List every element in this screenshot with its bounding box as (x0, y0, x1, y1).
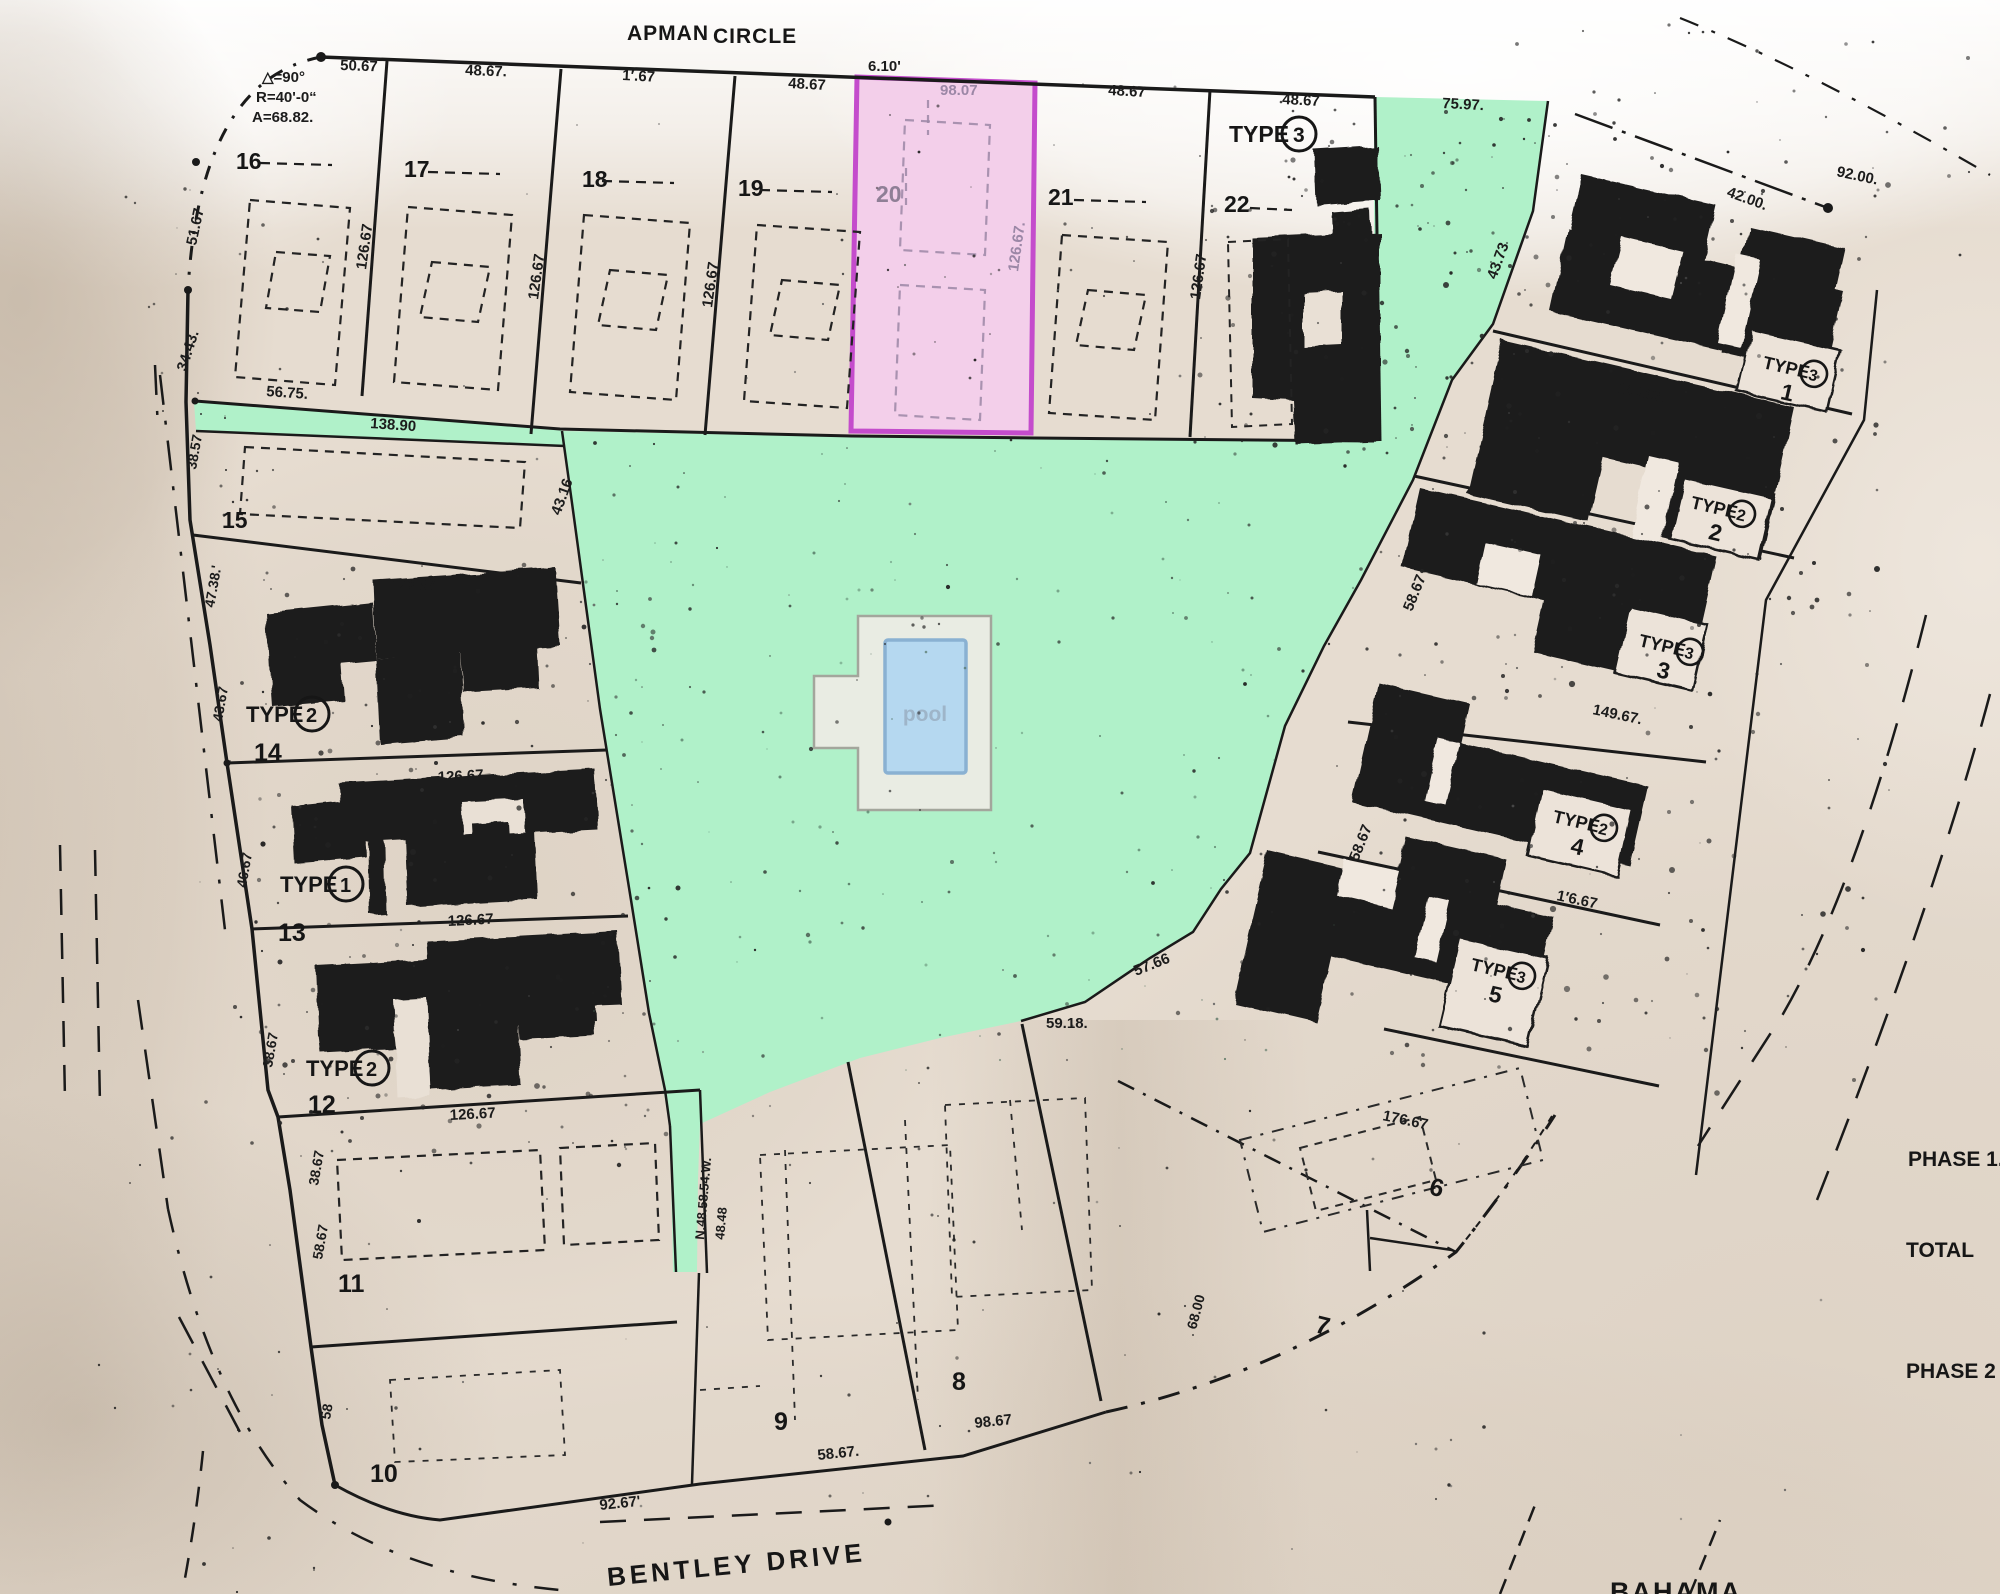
svg-text:10: 10 (370, 1460, 398, 1488)
svg-text:CIRCLE: CIRCLE (713, 25, 797, 48)
svg-text:PHASE 2: PHASE 2 (1906, 1360, 1996, 1383)
svg-text:19: 19 (738, 175, 764, 201)
svg-text:50.67: 50.67 (340, 57, 378, 75)
svg-text:3: 3 (1293, 124, 1305, 147)
svg-text:17: 17 (404, 156, 430, 182)
svg-text:14: 14 (254, 739, 282, 767)
svg-text:9: 9 (774, 1408, 788, 1436)
svg-text:TYPE: TYPE (1229, 121, 1289, 147)
svg-text:6.10': 6.10' (868, 58, 901, 75)
svg-text:21: 21 (1048, 184, 1074, 210)
svg-text:11: 11 (338, 1270, 365, 1298)
svg-text:75.97.: 75.97. (1442, 95, 1485, 114)
svg-text:59.18.: 59.18. (1046, 1015, 1088, 1032)
svg-text:22: 22 (1224, 191, 1250, 217)
svg-text:48.67: 48.67 (1108, 82, 1146, 101)
svg-text:98.07: 98.07 (940, 82, 978, 99)
svg-text:R=40'-0“: R=40'-0“ (256, 89, 317, 106)
svg-text:8: 8 (952, 1368, 966, 1396)
svg-text:126.67: 126.67 (449, 1105, 496, 1124)
svg-text:56.75.: 56.75. (266, 383, 309, 403)
svg-text:48.67.: 48.67. (465, 62, 507, 80)
svg-text:126.67: 126.67 (447, 911, 494, 930)
svg-text:1′.67: 1′.67 (622, 67, 656, 86)
svg-text:△=90°: △=90° (261, 69, 305, 86)
svg-text:13: 13 (278, 919, 306, 947)
svg-text:A=68.82.: A=68.82. (252, 109, 313, 126)
svg-text:2: 2 (306, 705, 317, 727)
svg-text:PHASE 1.: PHASE 1. (1908, 1148, 2000, 1171)
svg-text:58: 58 (317, 1402, 335, 1420)
svg-text:15: 15 (222, 507, 248, 533)
svg-text:12: 12 (308, 1091, 336, 1119)
svg-text:48.48: 48.48 (712, 1207, 730, 1241)
svg-text:BAHAMA: BAHAMA (1610, 1577, 1742, 1594)
svg-text:1: 1 (340, 875, 351, 897)
svg-text:18: 18 (582, 166, 608, 192)
svg-text:2: 2 (366, 1059, 377, 1081)
svg-text:20: 20 (876, 181, 902, 207)
svg-text:APMAN: APMAN (627, 22, 709, 45)
svg-text:126.67: 126.67 (437, 767, 484, 786)
svg-text:48.67: 48.67 (788, 75, 826, 94)
svg-text:126.67: 126.67 (389, 577, 436, 596)
svg-text:16: 16 (236, 148, 262, 174)
svg-text:TOTAL: TOTAL (1906, 1239, 1974, 1262)
svg-text:138.90: 138.90 (370, 415, 417, 435)
svg-text:48.67: 48.67 (1282, 91, 1320, 110)
svg-text:pool: pool (903, 703, 947, 726)
